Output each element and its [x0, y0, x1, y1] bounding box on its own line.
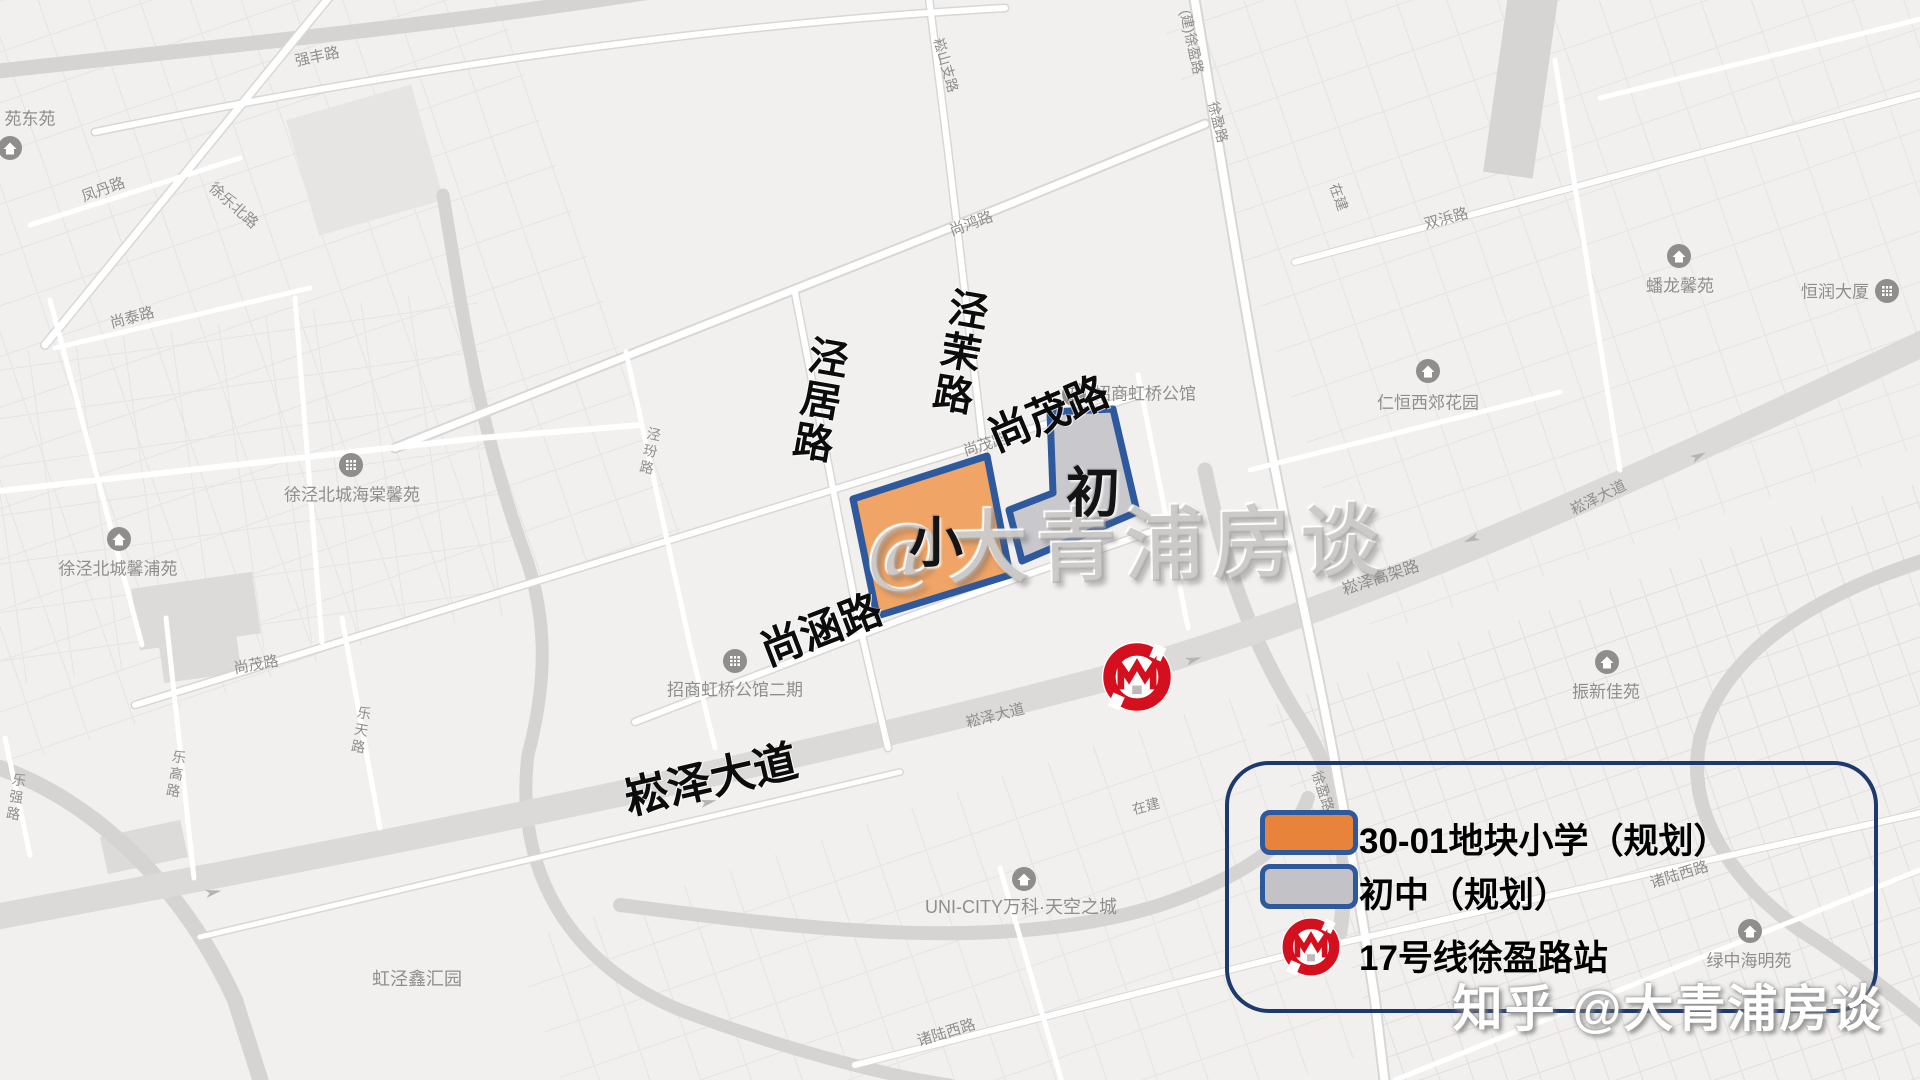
house-icon: [1667, 244, 1691, 268]
legend-label-middle: 初中（规划）: [1359, 867, 1569, 918]
metro-station-marker: [1102, 642, 1172, 712]
house-icon: [1595, 650, 1619, 674]
house-icon: [107, 527, 131, 551]
map-screenshot: 苑东苑凤丹路徐乐北路强丰路尚泰路徐泾北城海棠馨苑徐泾北城馨浦苑泾玢路崧山支路尚鸿…: [0, 0, 1920, 1080]
legend-swatch-elementary: [1260, 810, 1358, 855]
metro-logo-icon: [1102, 642, 1172, 712]
building-icon: [1062, 382, 1086, 406]
building-icon: [1875, 279, 1899, 303]
watermark-zhihu: 知乎 @大青浦房谈: [1453, 969, 1884, 1041]
metro-logo-icon: [1279, 915, 1343, 979]
legend-swatch-middle: [1260, 864, 1358, 909]
building-icon: [339, 453, 363, 477]
building-icon: [723, 649, 747, 673]
legend-label-elementary: 30-01地块小学（规划）: [1359, 813, 1729, 864]
house-icon: [1012, 867, 1036, 891]
house-icon: [1416, 359, 1440, 383]
